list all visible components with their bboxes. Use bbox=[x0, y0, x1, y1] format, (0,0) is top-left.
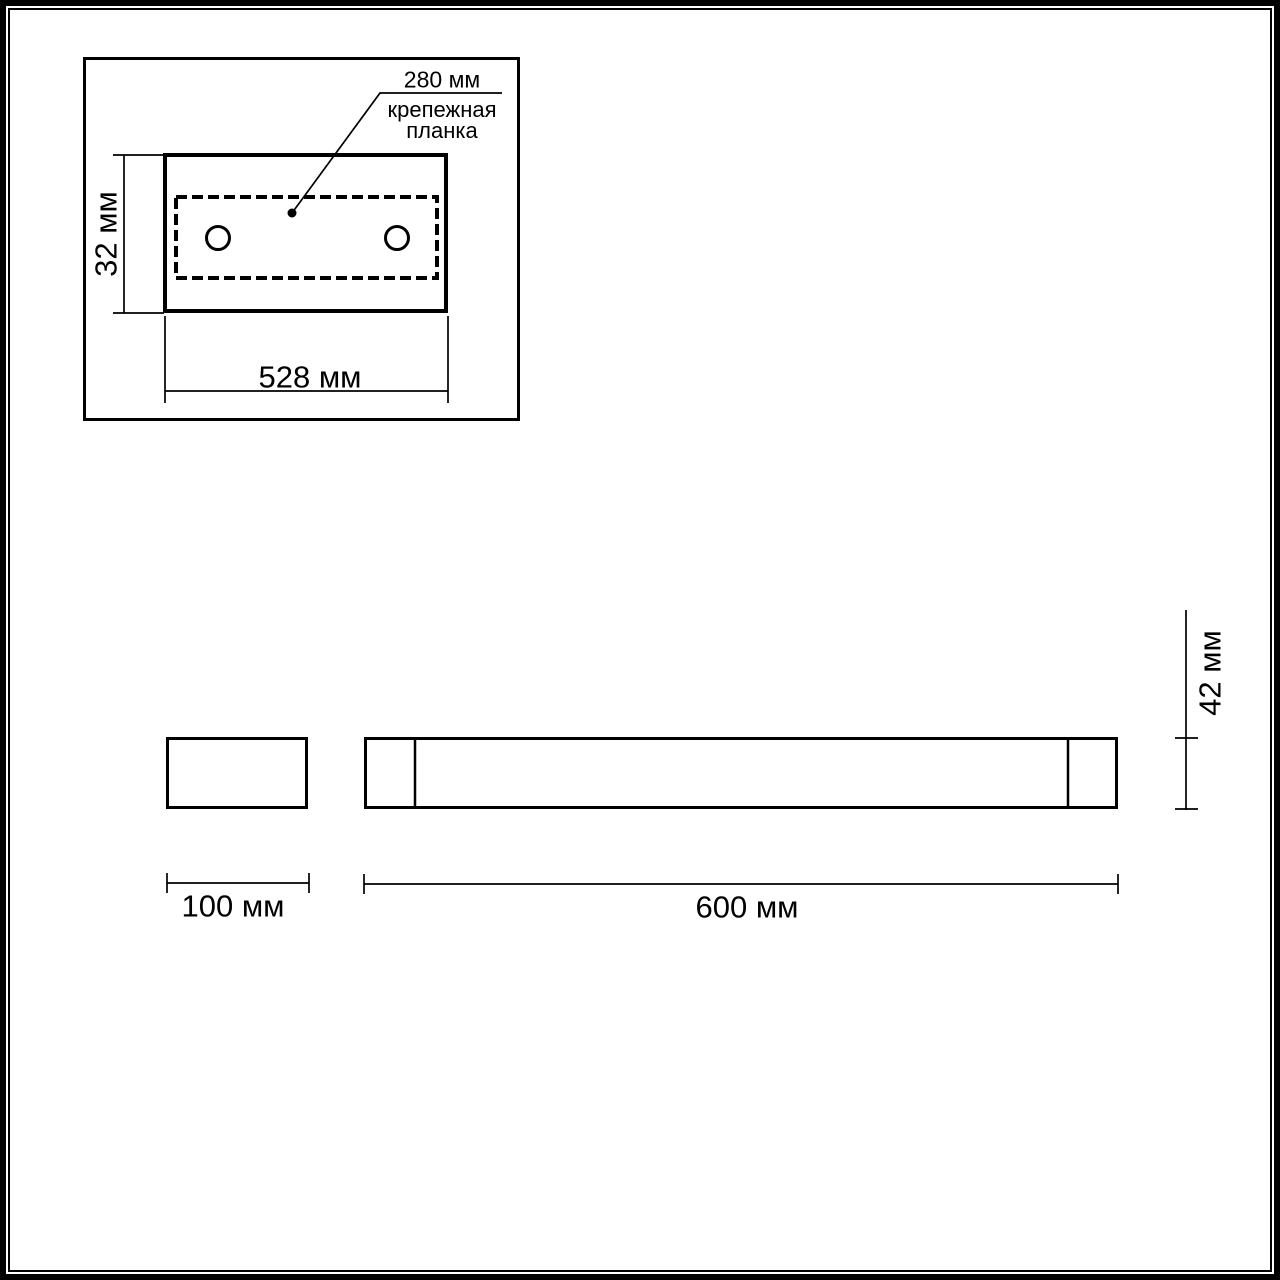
top-view-height-label: 32 мм bbox=[91, 191, 122, 277]
body-height-label: 42 мм bbox=[1195, 630, 1226, 716]
mounting-plate-label-line2: планка bbox=[387, 120, 496, 141]
mounting-hole-right bbox=[386, 227, 409, 250]
hole-spacing-label: 280 мм bbox=[404, 69, 480, 92]
mounting-hole-left bbox=[207, 227, 230, 250]
end-cap-width-label: 100 мм bbox=[182, 891, 285, 922]
body-length-label: 600 мм bbox=[696, 892, 799, 923]
top-view-width-label: 528 мм bbox=[259, 362, 362, 393]
drawing-linework bbox=[0, 0, 1280, 1280]
drawing-page: 280 мм крепежная планка 32 мм 528 мм 100… bbox=[0, 0, 1280, 1280]
mounting-plate-label-line1: крепежная bbox=[387, 99, 496, 120]
mounting-plate-label: крепежная планка bbox=[387, 99, 496, 141]
